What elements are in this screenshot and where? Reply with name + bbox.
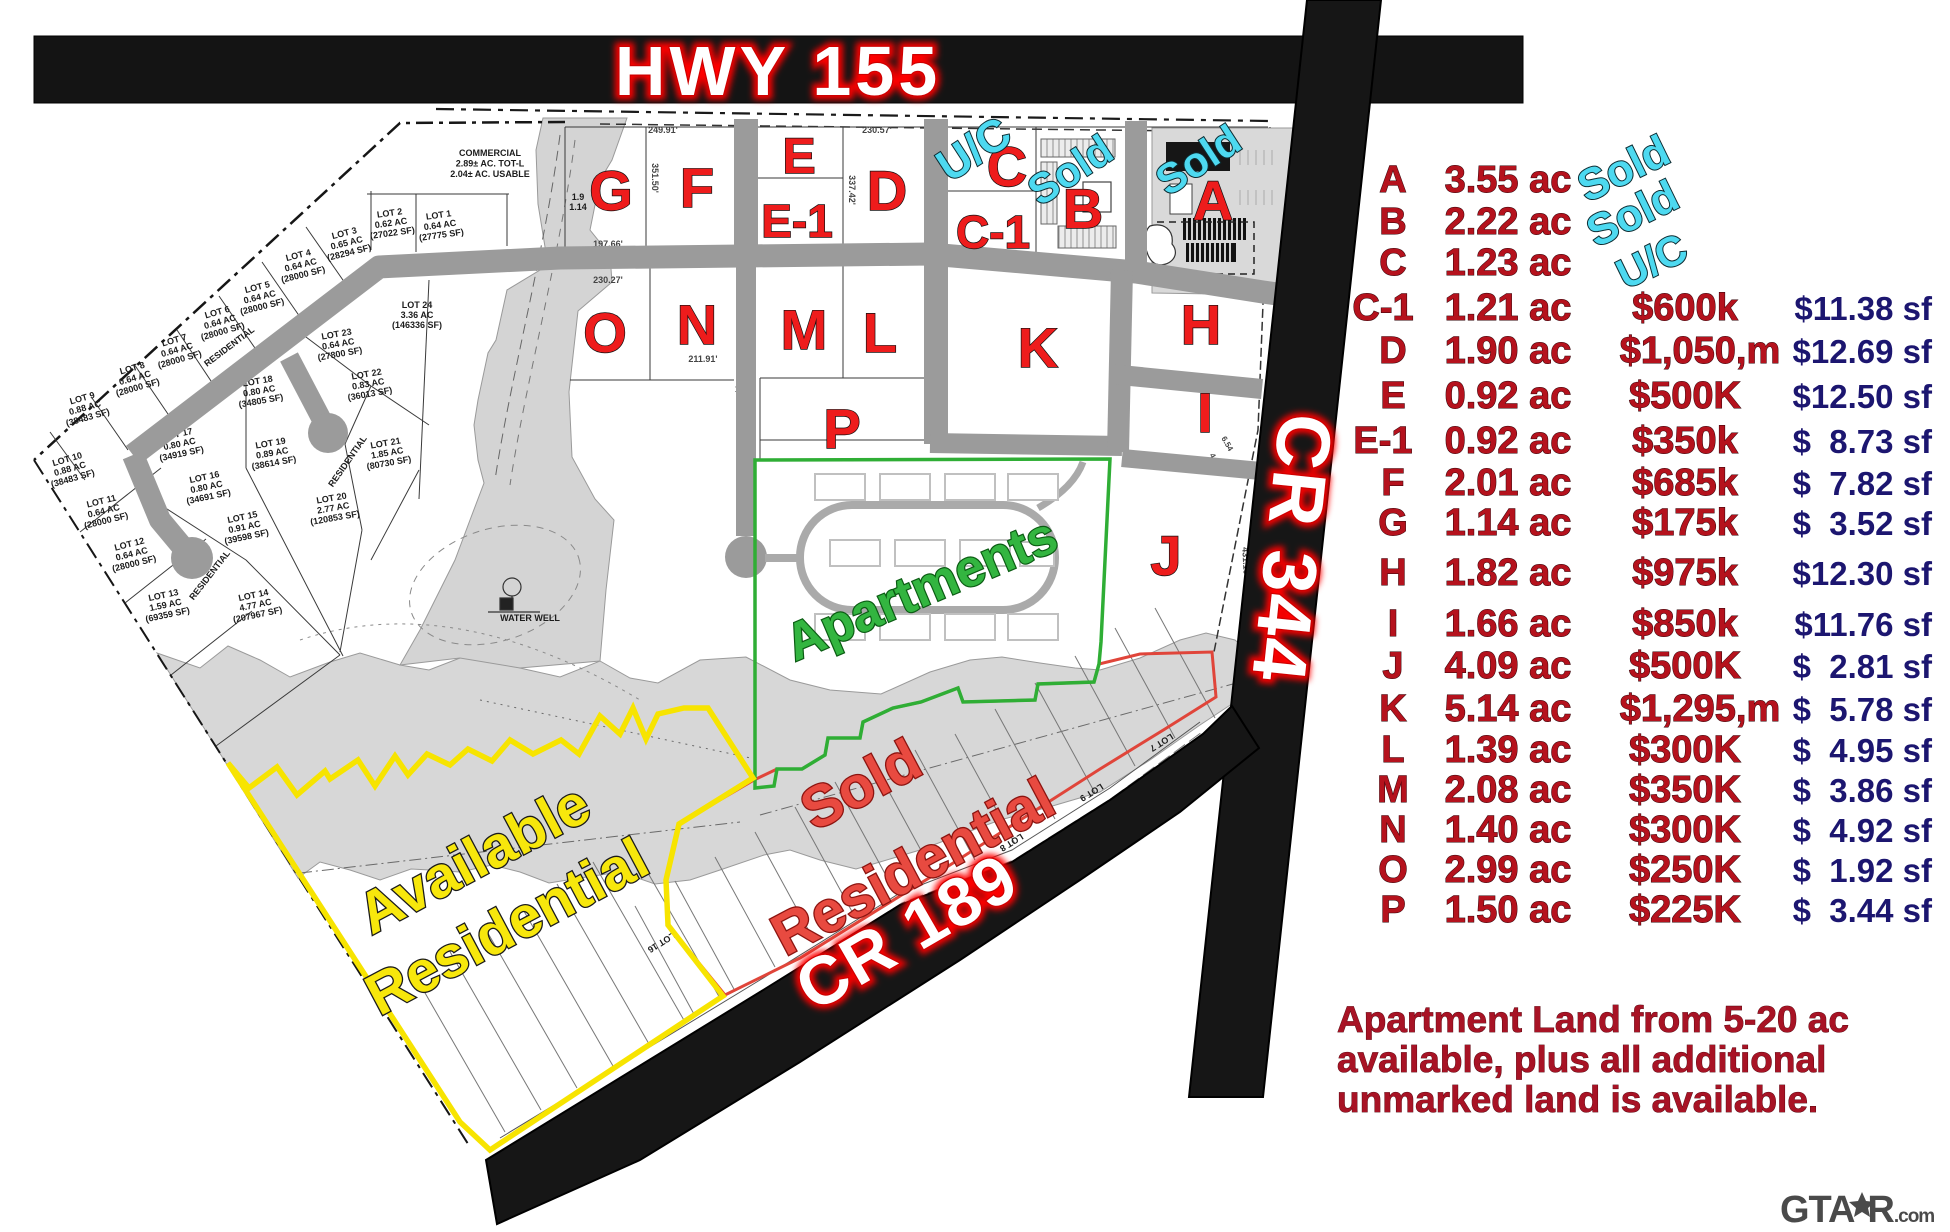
svg-text:available, plus all additional: available, plus all additional (1337, 1039, 1826, 1080)
svg-text:1.90 ac: 1.90 ac (1445, 330, 1572, 372)
svg-text:$1,050,m: $1,050,m (1620, 330, 1781, 372)
svg-text:unmarked land is available.: unmarked land is available. (1337, 1079, 1818, 1120)
svg-text:$975k: $975k (1632, 552, 1739, 594)
svg-text:O: O (1378, 849, 1408, 891)
svg-text:0.92 ac: 0.92 ac (1445, 375, 1572, 417)
svg-text:COMMERCIAL2.89± AC. TOT-L2.04±: COMMERCIAL2.89± AC. TOT-L2.04± AC. USABL… (450, 148, 530, 179)
svg-text:F: F (680, 156, 714, 219)
svg-text:1.39 ac: 1.39 ac (1445, 729, 1572, 771)
svg-text:L: L (863, 301, 897, 364)
svg-text:$225K: $225K (1629, 889, 1742, 931)
svg-text:$ 5.78 sf: $ 5.78 sf (1793, 691, 1933, 728)
svg-text:$ 7.82 sf: $ 7.82 sf (1793, 465, 1933, 502)
svg-text:G: G (1378, 502, 1408, 544)
svg-text:G: G (589, 159, 633, 222)
svg-text:E-1: E-1 (1353, 420, 1412, 462)
svg-text:$250K: $250K (1629, 849, 1742, 891)
svg-text:$175k: $175k (1632, 502, 1739, 544)
svg-text:2.22 ac: 2.22 ac (1445, 201, 1572, 243)
svg-text:P: P (823, 397, 860, 460)
svg-text:$500K: $500K (1629, 375, 1742, 417)
svg-text:$350K: $350K (1629, 769, 1742, 811)
svg-text:337.42': 337.42' (847, 175, 857, 205)
svg-text:1.14: 1.14 (569, 202, 587, 212)
svg-text:K: K (1018, 316, 1058, 379)
svg-text:E: E (1380, 375, 1405, 417)
svg-text:A: A (1379, 159, 1406, 201)
svg-text:E-1: E-1 (761, 195, 833, 247)
svg-text:$500K: $500K (1629, 645, 1742, 687)
svg-text:F: F (1381, 462, 1404, 504)
svg-text:2.08 ac: 2.08 ac (1445, 769, 1572, 811)
svg-text:P: P (1380, 889, 1405, 931)
svg-text:B: B (1379, 201, 1406, 243)
svg-text:249.91': 249.91' (648, 125, 678, 135)
svg-text:$ 4.92 sf: $ 4.92 sf (1793, 812, 1933, 849)
svg-text:$ 1.92 sf: $ 1.92 sf (1793, 852, 1933, 889)
svg-text:WATER WELL: WATER WELL (500, 613, 560, 623)
svg-text:$350k: $350k (1632, 420, 1739, 462)
svg-text:1.23 ac: 1.23 ac (1445, 242, 1572, 284)
svg-text:$685k: $685k (1632, 462, 1739, 504)
svg-text:$11.38 sf: $11.38 sf (1794, 290, 1933, 327)
svg-text:D: D (867, 159, 907, 222)
svg-text:230.57': 230.57' (862, 125, 892, 135)
svg-text:I: I (1388, 603, 1399, 645)
svg-text:Apartment Land from 5-20 ac: Apartment Land from 5-20 ac (1337, 999, 1849, 1040)
svg-text:M: M (781, 298, 828, 361)
svg-text:D: D (1379, 330, 1406, 372)
svg-text:1.14 ac: 1.14 ac (1445, 502, 1572, 544)
svg-text:2.99 ac: 2.99 ac (1445, 849, 1572, 891)
svg-text:0.92 ac: 0.92 ac (1445, 420, 1572, 462)
svg-text:5.14 ac: 5.14 ac (1445, 688, 1572, 730)
svg-text:L: L (1381, 729, 1404, 771)
svg-text:$ 3.44 sf: $ 3.44 sf (1793, 892, 1933, 929)
svg-text:1.21 ac: 1.21 ac (1445, 287, 1572, 329)
svg-text:O: O (583, 301, 627, 364)
svg-text:$300K: $300K (1629, 729, 1742, 771)
svg-text:J: J (1382, 645, 1403, 687)
svg-text:$12.50 sf: $12.50 sf (1793, 378, 1933, 415)
svg-text:230.27': 230.27' (593, 275, 623, 285)
svg-text:$1,295,m: $1,295,m (1620, 688, 1781, 730)
svg-text:N: N (1379, 809, 1406, 851)
svg-text:K: K (1379, 688, 1407, 730)
svg-text:H: H (1181, 293, 1221, 356)
svg-text:$ 4.95 sf: $ 4.95 sf (1793, 732, 1933, 769)
svg-text:J: J (1150, 524, 1181, 587)
svg-text:H: H (1379, 552, 1406, 594)
svg-text:4.09 ac: 4.09 ac (1445, 645, 1572, 687)
svg-text:351.50': 351.50' (650, 163, 660, 193)
svg-text:$ 8.73 sf: $ 8.73 sf (1793, 423, 1933, 460)
svg-text:$ 3.86 sf: $ 3.86 sf (1793, 772, 1933, 809)
svg-text:$11.76 sf: $11.76 sf (1794, 606, 1933, 643)
svg-text:$12.30 sf: $12.30 sf (1793, 555, 1933, 592)
svg-text:N: N (677, 293, 717, 356)
svg-text:$850k: $850k (1632, 603, 1739, 645)
svg-text:1.50 ac: 1.50 ac (1445, 889, 1572, 931)
svg-text:I: I (1197, 381, 1213, 444)
svg-text:1.9: 1.9 (572, 192, 585, 202)
svg-text:$ 2.81 sf: $ 2.81 sf (1793, 648, 1933, 685)
svg-text:C-1: C-1 (956, 206, 1030, 258)
svg-text:E: E (782, 128, 815, 184)
svg-text:3.55 ac: 3.55 ac (1445, 159, 1572, 201)
svg-text:1.82 ac: 1.82 ac (1445, 552, 1572, 594)
svg-text:2.01 ac: 2.01 ac (1445, 462, 1572, 504)
svg-text:$300K: $300K (1629, 809, 1742, 851)
svg-text:C-1: C-1 (1352, 287, 1413, 329)
svg-text:$600k: $600k (1632, 287, 1739, 329)
svg-text:$12.69 sf: $12.69 sf (1793, 333, 1933, 370)
svg-text:M: M (1377, 769, 1409, 811)
svg-text:C: C (1379, 242, 1406, 284)
svg-text:1.66 ac: 1.66 ac (1445, 603, 1572, 645)
svg-text:$ 3.52 sf: $ 3.52 sf (1793, 505, 1933, 542)
svg-text:1.40 ac: 1.40 ac (1445, 809, 1572, 851)
svg-text:HWY 155: HWY 155 (615, 32, 941, 110)
